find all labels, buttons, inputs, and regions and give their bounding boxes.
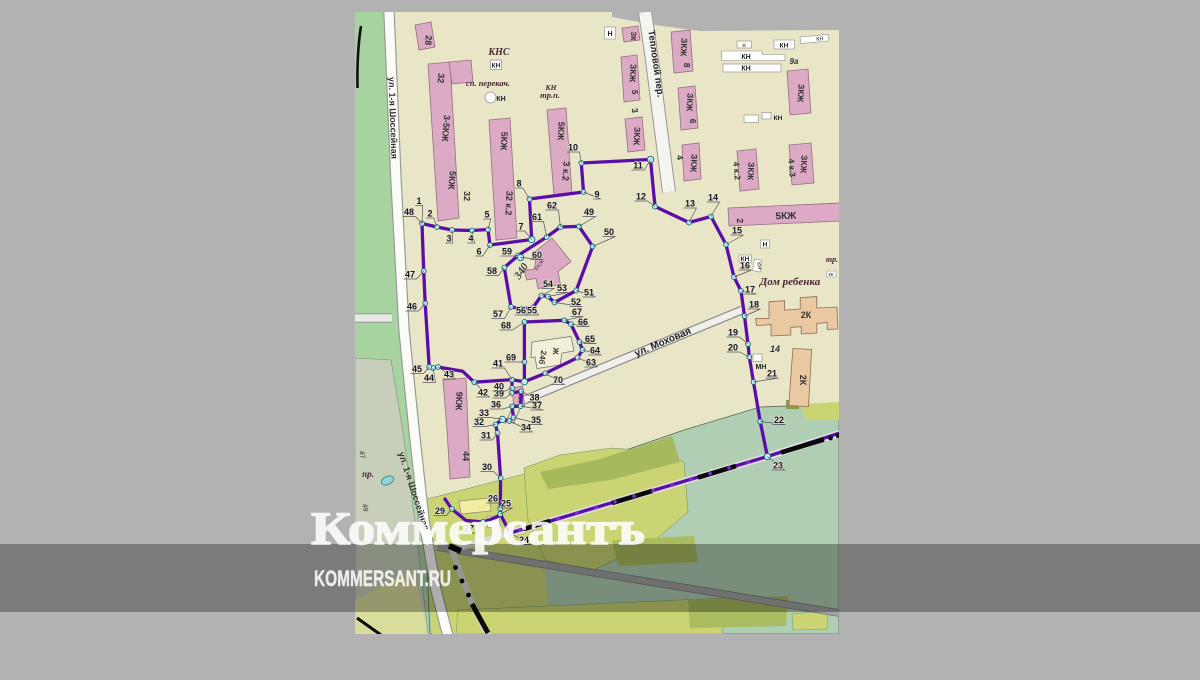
svg-text:16: 16 <box>740 261 750 271</box>
svg-text:62: 62 <box>547 201 557 211</box>
svg-text:65: 65 <box>585 334 595 344</box>
svg-text:ЗКЖ: ЗКЖ <box>628 64 639 83</box>
svg-text:30: 30 <box>482 462 492 472</box>
svg-text:10: 10 <box>568 143 578 153</box>
svg-text:52: 52 <box>571 297 581 307</box>
svg-text:9КЖ: 9КЖ <box>453 392 464 412</box>
svg-text:32 к.2: 32 к.2 <box>503 191 514 216</box>
svg-text:49: 49 <box>584 207 594 217</box>
svg-text:47: 47 <box>405 270 415 280</box>
svg-text:9: 9 <box>594 190 599 200</box>
svg-text:2К: 2К <box>801 310 812 320</box>
svg-text:KOMMERSANT.RU: KOMMERSANT.RU <box>314 566 451 591</box>
svg-text:35: 35 <box>531 415 541 425</box>
svg-text:57: 57 <box>493 309 503 319</box>
svg-text:56: 56 <box>516 306 526 316</box>
svg-text:КНС: КНС <box>487 47 510 58</box>
svg-text:13: 13 <box>685 199 695 209</box>
svg-text:5: 5 <box>630 90 640 96</box>
svg-text:Дом ребенка: Дом ребенка <box>759 276 821 288</box>
svg-text:45: 45 <box>412 364 422 374</box>
svg-text:19: 19 <box>728 328 738 338</box>
svg-text:сп. перекач.: сп. перекач. <box>466 78 510 88</box>
svg-text:ЗКЖ: ЗКЖ <box>746 162 757 181</box>
svg-text:Н: Н <box>607 31 612 38</box>
svg-text:60: 60 <box>532 250 542 260</box>
svg-text:ЗКЖ: ЗКЖ <box>799 155 810 174</box>
svg-text:КН: КН <box>774 115 783 122</box>
svg-text:40: 40 <box>494 382 504 392</box>
svg-text:ЗКЖ: ЗКЖ <box>685 93 696 112</box>
svg-text:48: 48 <box>404 207 414 217</box>
svg-text:5: 5 <box>484 210 489 220</box>
svg-text:ЗКЖ: ЗКЖ <box>689 154 700 173</box>
svg-text:4 к.3: 4 к.3 <box>786 158 798 178</box>
svg-text:38: 38 <box>529 393 539 403</box>
svg-text:17: 17 <box>745 285 755 295</box>
svg-text:18: 18 <box>749 300 759 310</box>
svg-text:ЗКЖ: ЗКЖ <box>679 38 690 57</box>
svg-text:61: 61 <box>532 212 542 222</box>
svg-text:МН: МН <box>756 364 767 371</box>
svg-text:8: 8 <box>682 63 692 69</box>
svg-text:Н: Н <box>763 242 768 249</box>
svg-text:64: 64 <box>590 346 600 356</box>
svg-text:32: 32 <box>436 73 447 84</box>
svg-text:н: н <box>742 43 745 49</box>
svg-text:21: 21 <box>767 369 777 379</box>
svg-text:2К: 2К <box>798 375 808 386</box>
svg-text:9а: 9а <box>790 57 799 66</box>
svg-text:3: 3 <box>446 234 451 244</box>
svg-text:70: 70 <box>553 375 563 385</box>
svg-text:43: 43 <box>444 370 454 380</box>
svg-text:КН: КН <box>496 96 505 103</box>
svg-text:5КЖ: 5КЖ <box>446 171 458 191</box>
svg-text:кн: кн <box>829 272 834 278</box>
svg-text:42: 42 <box>478 388 488 398</box>
svg-text:5КЖ: 5КЖ <box>498 132 509 152</box>
svg-text:6: 6 <box>688 119 698 125</box>
svg-text:4: 4 <box>468 234 473 244</box>
svg-text:5КЖ: 5КЖ <box>555 122 566 142</box>
svg-text:50: 50 <box>604 227 614 237</box>
svg-text:6: 6 <box>476 247 481 257</box>
svg-text:46: 46 <box>407 302 417 312</box>
svg-text:54: 54 <box>543 279 553 289</box>
svg-text:ЗК: ЗК <box>629 31 638 41</box>
svg-text:4 к.2: 4 к.2 <box>731 161 743 181</box>
svg-text:ЗКЖ: ЗКЖ <box>796 84 807 103</box>
svg-text:44: 44 <box>424 373 434 383</box>
svg-text:1: 1 <box>416 196 421 206</box>
svg-text:Ж: Ж <box>551 346 560 355</box>
svg-text:32: 32 <box>462 191 472 201</box>
svg-text:36: 36 <box>491 400 501 410</box>
svg-text:59: 59 <box>502 247 512 257</box>
svg-text:КН: КН <box>780 43 789 50</box>
svg-text:22: 22 <box>774 415 784 425</box>
svg-text:14: 14 <box>708 193 718 203</box>
svg-text:11: 11 <box>633 161 643 171</box>
svg-text:ЗКЖ: ЗКЖ <box>632 127 643 146</box>
svg-text:26: 26 <box>488 494 498 504</box>
svg-text:67: 67 <box>572 307 582 317</box>
svg-text:41: 41 <box>493 359 503 369</box>
svg-text:69: 69 <box>506 353 516 363</box>
svg-text:33: 33 <box>479 408 489 418</box>
svg-text:23: 23 <box>773 461 783 471</box>
svg-text:КН: КН <box>816 36 824 42</box>
svg-text:28: 28 <box>423 35 434 46</box>
svg-text:8: 8 <box>516 179 521 189</box>
svg-text:7: 7 <box>518 222 523 232</box>
svg-text:КН: КН <box>741 54 750 61</box>
svg-text:55: 55 <box>527 306 537 316</box>
svg-text:КН: КН <box>755 262 762 270</box>
svg-text:47: 47 <box>357 450 365 459</box>
svg-text:31: 31 <box>481 431 491 441</box>
svg-text:тр.п.: тр.п. <box>540 90 560 100</box>
svg-text:51: 51 <box>584 288 594 298</box>
svg-text:44: 44 <box>461 451 472 462</box>
svg-text:5КЖ: 5КЖ <box>775 211 797 223</box>
svg-text:12: 12 <box>636 192 646 202</box>
svg-text:КН: КН <box>492 63 501 70</box>
svg-text:20: 20 <box>728 343 738 353</box>
svg-text:63: 63 <box>586 358 596 368</box>
svg-text:2: 2 <box>735 218 745 224</box>
svg-text:34: 34 <box>521 423 531 433</box>
svg-text:15: 15 <box>732 226 742 236</box>
svg-text:2: 2 <box>427 209 432 219</box>
svg-text:КН: КН <box>741 66 750 73</box>
svg-text:68: 68 <box>501 321 511 331</box>
svg-text:53: 53 <box>557 283 567 293</box>
svg-text:3 к.2: 3 к.2 <box>560 161 571 181</box>
svg-text:58: 58 <box>487 266 497 276</box>
svg-text:32: 32 <box>474 417 484 427</box>
svg-text:66: 66 <box>578 317 588 327</box>
svg-text:Коммерсантъ: Коммерсантъ <box>311 503 645 555</box>
svg-text:тр.: тр. <box>826 255 838 264</box>
svg-text:пр.: пр. <box>362 469 374 479</box>
svg-text:14: 14 <box>770 344 780 354</box>
